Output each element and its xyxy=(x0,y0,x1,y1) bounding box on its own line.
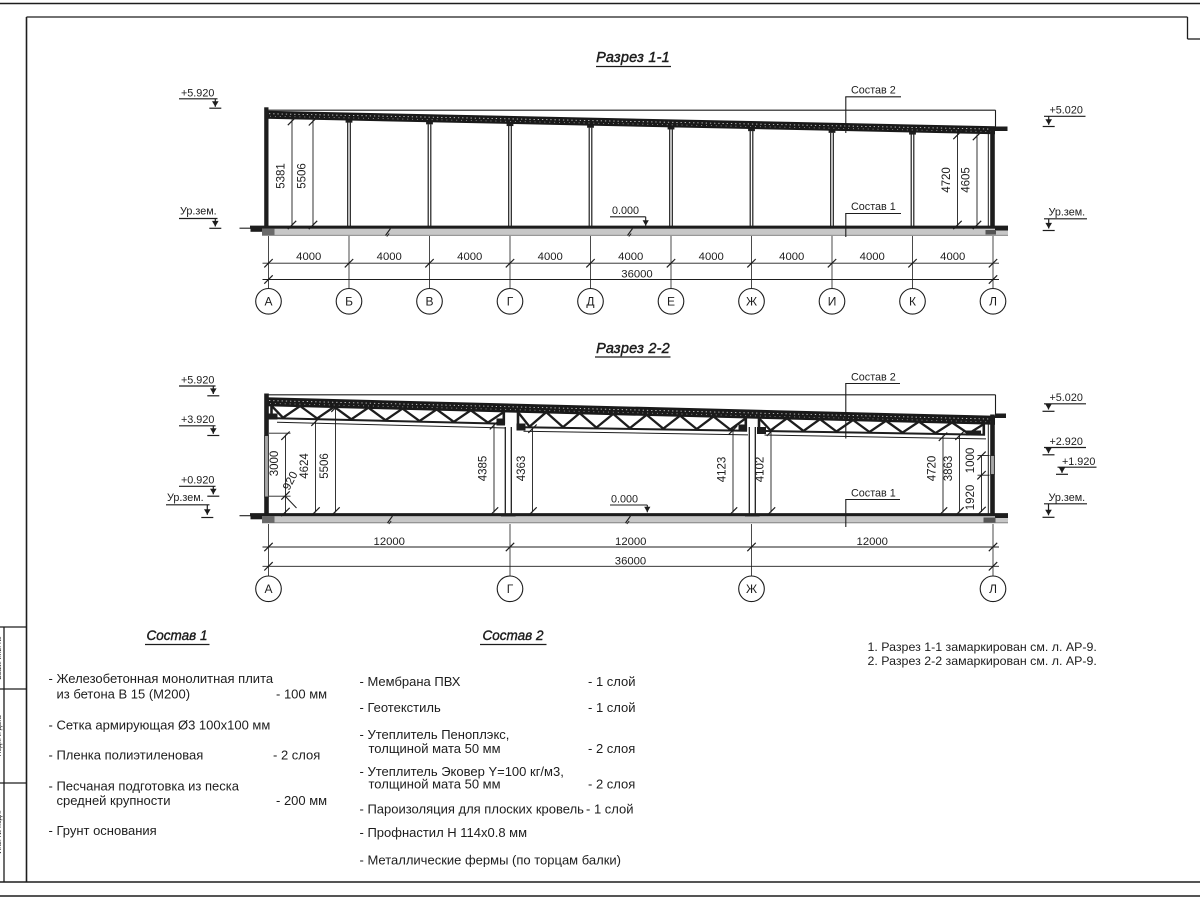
svg-text:А: А xyxy=(264,295,272,309)
svg-text:4000: 4000 xyxy=(618,251,643,263)
svg-text:Состав 2: Состав 2 xyxy=(851,85,896,97)
svg-text:Подп. и дата: Подп. и дата xyxy=(0,715,3,756)
svg-text:5506: 5506 xyxy=(319,453,331,479)
svg-text:1. Разрез 1-1 замаркирован см.: 1. Разрез 1-1 замаркирован см. л. АР-9. xyxy=(868,640,1097,654)
svg-text:12000: 12000 xyxy=(374,536,405,548)
svg-text:5381: 5381 xyxy=(276,163,288,189)
svg-text:- 100 мм: - 100 мм xyxy=(276,687,327,702)
svg-text:Инв. № подл.: Инв. № подл. xyxy=(0,810,3,854)
svg-text:А: А xyxy=(264,582,272,596)
svg-text:Ур.зем.: Ур.зем. xyxy=(1049,492,1086,504)
svg-text:Д: Д xyxy=(586,295,594,309)
svg-text:1000: 1000 xyxy=(965,448,977,474)
svg-text:- 2 слоя: - 2 слоя xyxy=(588,741,635,756)
svg-text:- 1 слой: - 1 слой xyxy=(586,802,634,817)
svg-text:Ур.зем.: Ур.зем. xyxy=(180,206,217,218)
svg-text:+5.020: +5.020 xyxy=(1050,105,1083,117)
svg-text:- Пленка полиэтиленовая: - Пленка полиэтиленовая xyxy=(49,748,204,763)
svg-text:Л: Л xyxy=(989,582,997,596)
svg-text:36000: 36000 xyxy=(621,268,652,280)
svg-text:- 200 мм: - 200 мм xyxy=(276,793,327,808)
svg-text:- Мембрана ПВХ: - Мембрана ПВХ xyxy=(360,674,461,689)
svg-text:- Сетка армирующая Ø3 100х100: - Сетка армирующая Ø3 100х100 мм xyxy=(49,718,271,733)
svg-text:3863: 3863 xyxy=(943,456,955,482)
svg-text:4605: 4605 xyxy=(961,167,973,193)
svg-text:+3.920: +3.920 xyxy=(181,414,214,426)
svg-text:4102: 4102 xyxy=(755,457,767,483)
svg-text:4123: 4123 xyxy=(717,457,729,483)
svg-text:- Металлические фермы (по торц: - Металлические фермы (по торцам балки) xyxy=(360,853,621,868)
svg-text:Состав 2: Состав 2 xyxy=(851,371,896,383)
svg-text:4000: 4000 xyxy=(779,251,804,263)
svg-text:- Грунт основания: - Грунт основания xyxy=(49,823,157,838)
svg-text:36000: 36000 xyxy=(615,555,646,567)
svg-text:толщиной мата 50 мм: толщиной мата 50 мм xyxy=(369,741,501,756)
svg-text:Взам. инв. №: Взам. инв. № xyxy=(0,636,3,679)
svg-text:Б: Б xyxy=(345,295,353,309)
svg-text:И: И xyxy=(828,295,837,309)
svg-text:+5.020: +5.020 xyxy=(1050,392,1083,404)
svg-text:3000: 3000 xyxy=(269,451,281,477)
svg-text:1920: 1920 xyxy=(965,485,977,511)
svg-text:Г: Г xyxy=(507,582,514,596)
svg-text:- 1 слой: - 1 слой xyxy=(588,674,636,689)
svg-text:4000: 4000 xyxy=(457,251,482,263)
svg-text:Ж: Ж xyxy=(746,295,757,309)
svg-text:К: К xyxy=(909,295,916,309)
svg-text:- Утеплитель Пеноплэкс,: - Утеплитель Пеноплэкс, xyxy=(360,727,510,742)
svg-text:- Пароизоляция для плоских кро: - Пароизоляция для плоских кровель xyxy=(360,802,585,817)
svg-text:0.000: 0.000 xyxy=(611,494,638,506)
svg-text:Ур.зем.: Ур.зем. xyxy=(1049,207,1086,219)
svg-text:12000: 12000 xyxy=(857,536,888,548)
svg-text:4363: 4363 xyxy=(516,456,528,482)
svg-text:Л: Л xyxy=(989,295,997,309)
svg-text:Состав 2: Состав 2 xyxy=(483,628,544,643)
svg-text:+2.920: +2.920 xyxy=(1050,436,1083,448)
svg-text:- 1 слой: - 1 слой xyxy=(588,700,636,715)
svg-text:5506: 5506 xyxy=(297,163,309,189)
svg-text:- Геотекстиль: - Геотекстиль xyxy=(360,700,441,715)
svg-text:толщиной мата 50 мм: толщиной мата 50 мм xyxy=(369,777,501,792)
svg-text:0.000: 0.000 xyxy=(612,205,639,217)
svg-text:4000: 4000 xyxy=(940,251,965,263)
svg-text:4624: 4624 xyxy=(299,453,311,479)
svg-text:4720: 4720 xyxy=(941,167,953,193)
svg-text:Состав 1: Состав 1 xyxy=(851,487,896,499)
svg-text:Состав 1: Состав 1 xyxy=(851,201,896,213)
svg-text:+5.920: +5.920 xyxy=(181,375,214,387)
svg-text:Разрез 2-2: Разрез 2-2 xyxy=(596,341,670,357)
svg-text:4000: 4000 xyxy=(296,251,321,263)
svg-text:12000: 12000 xyxy=(615,536,646,548)
svg-text:- Профнастил Н 114х0.8 мм: - Профнастил Н 114х0.8 мм xyxy=(360,825,528,840)
svg-text:- Железобетонная монолитная п: - Железобетонная монолитная плита xyxy=(49,671,274,686)
svg-text:Состав 1: Состав 1 xyxy=(147,628,208,643)
svg-text:+1.920: +1.920 xyxy=(1062,456,1095,468)
svg-text:Г: Г xyxy=(507,295,514,309)
svg-text:4000: 4000 xyxy=(699,251,724,263)
svg-text:4720: 4720 xyxy=(927,456,939,482)
svg-text:4000: 4000 xyxy=(377,251,402,263)
svg-text:средней крупности: средней крупности xyxy=(57,793,171,808)
svg-text:Разрез 1-1: Разрез 1-1 xyxy=(596,50,670,66)
svg-text:4385: 4385 xyxy=(478,456,490,482)
svg-text:4000: 4000 xyxy=(860,251,885,263)
svg-text:Ур.зем.: Ур.зем. xyxy=(167,492,204,504)
svg-text:4000: 4000 xyxy=(538,251,563,263)
svg-text:Е: Е xyxy=(667,295,675,309)
svg-text:- Песчаная подготовка из песка: - Песчаная подготовка из песка xyxy=(49,779,240,794)
svg-text:- 2 слоя: - 2 слоя xyxy=(588,777,635,792)
svg-text:из бетона В 15 (М200): из бетона В 15 (М200) xyxy=(57,687,191,702)
svg-text:Ж: Ж xyxy=(746,582,757,596)
svg-text:2. Разрез 2-2 замаркирован см.: 2. Разрез 2-2 замаркирован см. л. АР-9. xyxy=(868,654,1097,668)
svg-text:+5.920: +5.920 xyxy=(181,88,214,100)
svg-text:В: В xyxy=(425,295,433,309)
svg-text:+0.920: +0.920 xyxy=(181,475,214,487)
svg-text:- 2 слоя: - 2 слоя xyxy=(273,748,320,763)
